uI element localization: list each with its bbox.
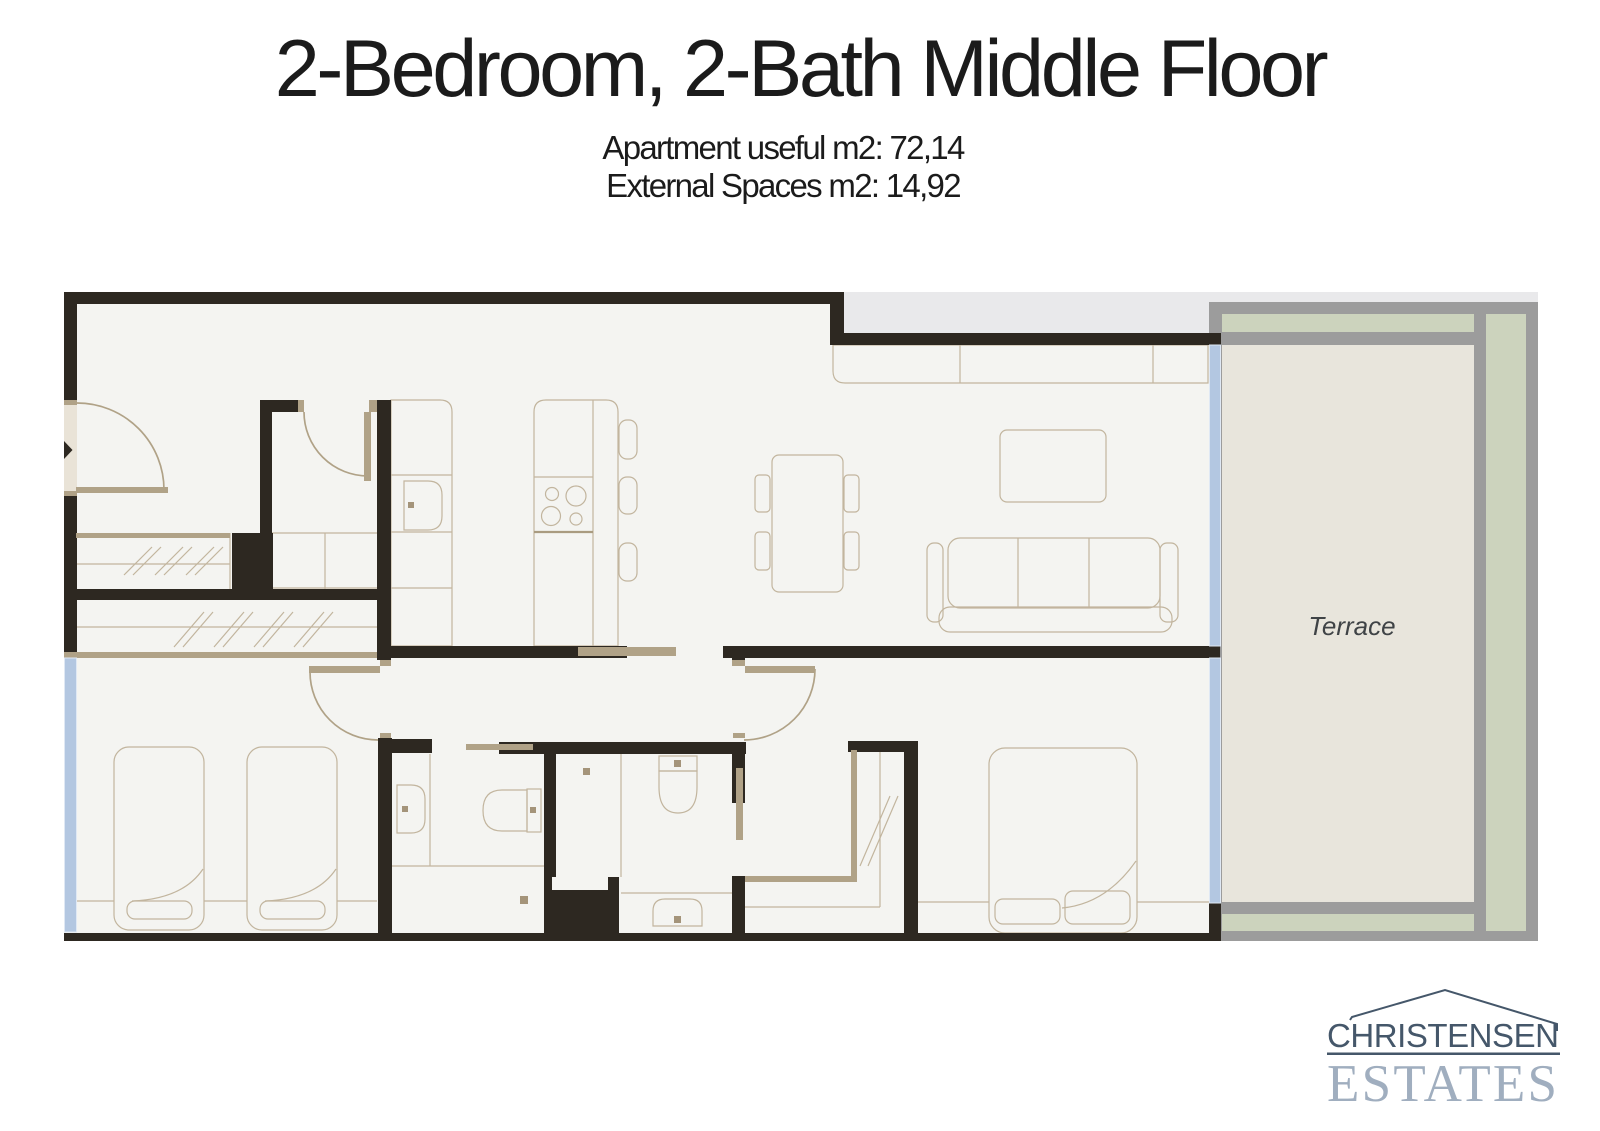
svg-text:CHRISTENSEN: CHRISTENSEN xyxy=(1327,1017,1559,1054)
svg-text:ESTATES: ESTATES xyxy=(1327,1055,1557,1113)
